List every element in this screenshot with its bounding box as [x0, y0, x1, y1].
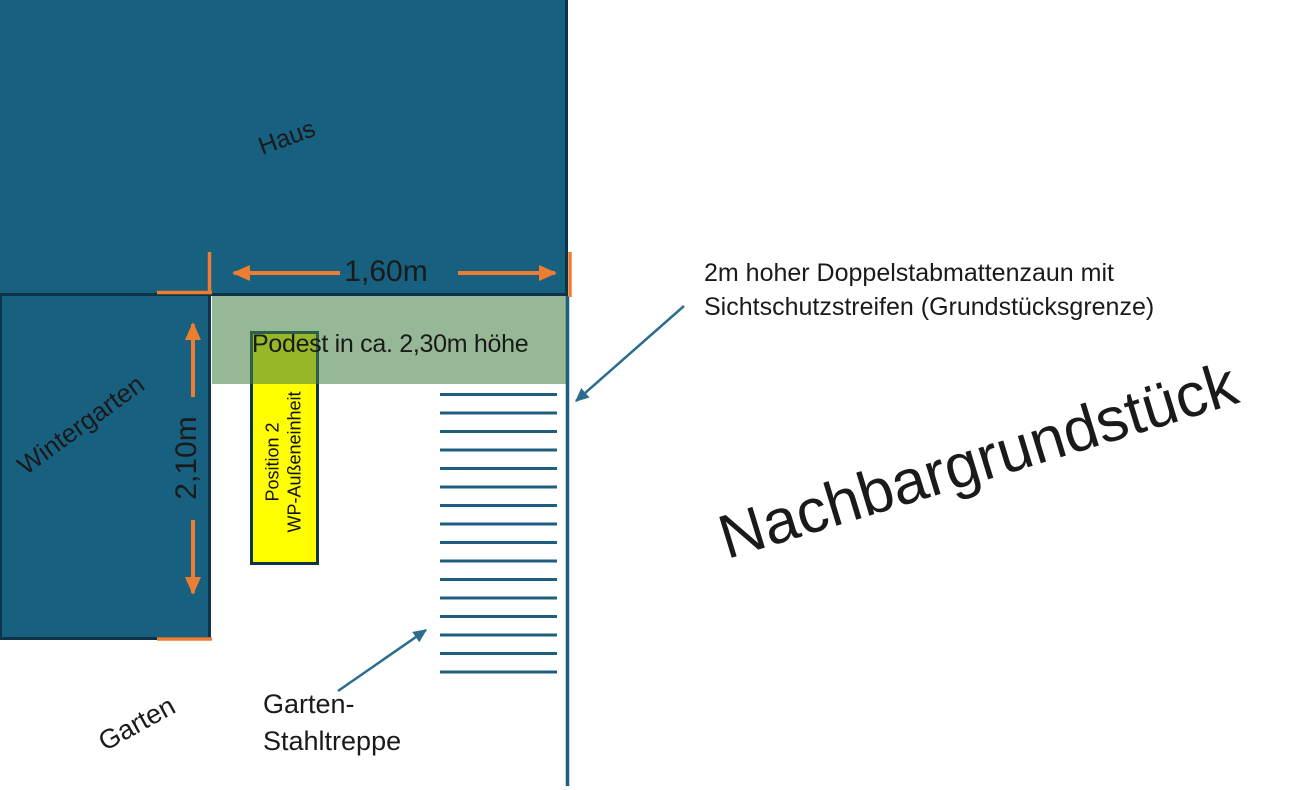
stairs-hatching [440, 395, 557, 673]
stairs-annotation-line1: Garten- [263, 686, 401, 723]
fence-callout-arrow [576, 306, 684, 401]
dimension-height-label: 2,10m [170, 416, 204, 499]
stairs-callout-arrow [338, 630, 426, 691]
wp-unit-label: Position 2 WP-Außeneinheit [262, 342, 305, 582]
stairs-annotation-label: Garten- Stahltreppe [263, 686, 401, 760]
wp-unit-label-line1: Position 2 [262, 342, 284, 582]
wp-unit-label-line2: WP-Außeneinheit [284, 342, 306, 582]
garten-label: Garten [93, 690, 180, 757]
neighbor-property-label: Nachbargrundstück [711, 348, 1246, 573]
site-plan-diagram: Haus Wintergarten Garten Nachbargrundstü… [0, 0, 1289, 790]
fence-annotation-line1: 2m hoher Doppelstabmattenzaun mit [704, 256, 1154, 290]
fence-annotation-label: 2m hoher Doppelstabmattenzaun mit Sichts… [704, 256, 1154, 324]
stairs-annotation-line2: Stahltreppe [263, 723, 401, 760]
dimension-width-label: 1,60m [344, 255, 427, 289]
fence-annotation-line2: Sichtschutzstreifen (Grundstücksgrenze) [704, 290, 1154, 324]
